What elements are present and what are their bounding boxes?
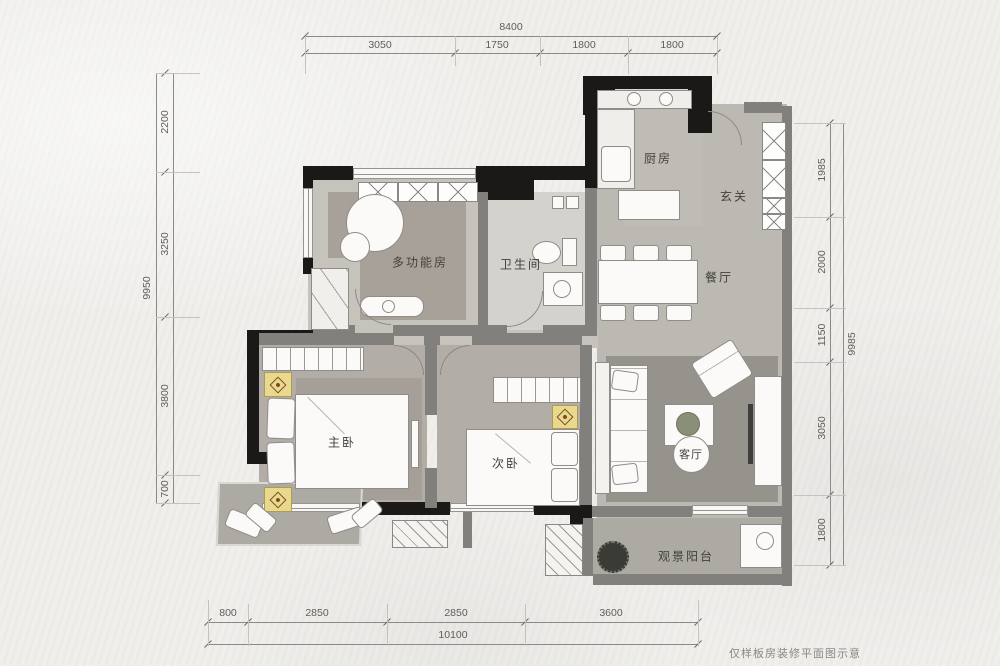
dim-label: 1800 bbox=[660, 39, 683, 51]
dim-label: 3250 bbox=[159, 232, 171, 255]
ac-platform bbox=[545, 524, 583, 576]
window bbox=[303, 188, 313, 258]
corner-cabinet bbox=[311, 268, 349, 330]
dim-label: 1800 bbox=[816, 518, 828, 541]
wall-segment bbox=[744, 102, 782, 113]
foyer-closet-cell bbox=[762, 214, 786, 230]
tv-cabinet bbox=[754, 376, 782, 486]
pillow bbox=[266, 442, 295, 485]
dim-extension bbox=[540, 36, 541, 66]
wall-segment bbox=[463, 512, 472, 548]
nightstand-medallion bbox=[270, 376, 287, 393]
multi-closet-cell bbox=[438, 182, 478, 202]
dim-extension bbox=[794, 495, 846, 496]
bath-basin bbox=[553, 280, 571, 298]
dining-chair bbox=[666, 245, 692, 261]
shower-fixture bbox=[552, 196, 564, 209]
master-door-leaf bbox=[411, 420, 419, 468]
room-label-foyer: 玄关 bbox=[720, 188, 748, 205]
foyer-closet-cell bbox=[762, 122, 786, 160]
wall-segment bbox=[425, 345, 437, 415]
balcony-plant bbox=[597, 541, 629, 573]
wall-segment bbox=[425, 468, 437, 508]
master-closet bbox=[262, 347, 364, 371]
sofa-pillow bbox=[611, 369, 640, 392]
room-label-bath: 卫生间 bbox=[500, 256, 542, 273]
dim-line bbox=[305, 36, 717, 37]
dim-line bbox=[208, 622, 698, 623]
ac-platform bbox=[392, 520, 448, 548]
wall-segment bbox=[585, 188, 597, 331]
pillow bbox=[551, 432, 578, 466]
room-label-balcony: 观景阳台 bbox=[658, 548, 714, 565]
wall-segment bbox=[580, 345, 592, 505]
dining-table bbox=[598, 260, 698, 304]
room-label-dining: 餐厅 bbox=[705, 269, 733, 286]
multi-closet-cell bbox=[398, 182, 438, 202]
dim-label: 3050 bbox=[368, 39, 391, 51]
foyer-closet-cell bbox=[762, 198, 786, 214]
dim-extension bbox=[794, 217, 846, 218]
dim-label: 10100 bbox=[438, 629, 467, 641]
dim-label: 3600 bbox=[599, 607, 622, 619]
nightstand-medallion bbox=[270, 491, 287, 508]
wall-segment bbox=[476, 166, 588, 180]
dim-line bbox=[843, 123, 844, 565]
dim-extension bbox=[305, 36, 306, 74]
heart-chair bbox=[340, 232, 370, 262]
dim-label: 2850 bbox=[444, 607, 467, 619]
floor-plan: 厨房 玄关 多功能房 卫生间 餐厅 主卧 次卧 客厅 观景阳台 8400 305… bbox=[0, 0, 1000, 666]
nightstand bbox=[264, 372, 292, 397]
room-label-multi: 多功能房 bbox=[392, 254, 448, 271]
second-dresser bbox=[493, 377, 581, 403]
fridge bbox=[618, 190, 680, 220]
sofa-back bbox=[595, 362, 610, 494]
dim-label: 1985 bbox=[816, 158, 828, 181]
dim-extension bbox=[208, 600, 209, 646]
dim-extension bbox=[156, 317, 200, 318]
dim-extension bbox=[698, 600, 699, 646]
dim-label: 2200 bbox=[159, 110, 171, 133]
dim-label: 3050 bbox=[816, 416, 828, 439]
nightstand bbox=[552, 405, 578, 429]
dining-chair bbox=[600, 305, 626, 321]
dim-label: 2000 bbox=[816, 250, 828, 273]
nightstand bbox=[264, 487, 292, 512]
dim-label: 3800 bbox=[159, 384, 171, 407]
dim-extension bbox=[387, 604, 388, 646]
room-label-living: 客厅 bbox=[679, 446, 703, 462]
dim-line bbox=[173, 73, 174, 503]
dining-chair bbox=[600, 245, 626, 261]
wall-segment bbox=[478, 192, 488, 325]
toilet-tank bbox=[562, 238, 577, 266]
pillow bbox=[551, 468, 578, 502]
wall-segment bbox=[247, 344, 259, 456]
dim-extension bbox=[794, 123, 846, 124]
sofa-pillow bbox=[611, 462, 639, 485]
dim-extension bbox=[717, 36, 718, 74]
wall-segment bbox=[583, 76, 712, 89]
washer bbox=[756, 532, 774, 550]
room-label-master: 主卧 bbox=[328, 434, 356, 451]
wall-segment bbox=[585, 89, 597, 188]
dim-extension bbox=[156, 503, 200, 504]
room-label-kitchen: 厨房 bbox=[644, 150, 672, 167]
dim-label: 8400 bbox=[499, 21, 522, 33]
dim-extension bbox=[794, 308, 846, 309]
dim-label: 2850 bbox=[305, 607, 328, 619]
dim-extension bbox=[794, 362, 846, 363]
dim-label: 9985 bbox=[846, 332, 858, 355]
wall-segment bbox=[748, 506, 782, 517]
dim-extension bbox=[794, 565, 846, 566]
kitchen-counter bbox=[597, 90, 692, 109]
dim-label: 800 bbox=[219, 607, 237, 619]
window bbox=[353, 168, 476, 179]
wall-segment bbox=[592, 506, 692, 517]
foyer-closet-cell bbox=[762, 160, 786, 198]
dim-line bbox=[830, 123, 831, 565]
plant bbox=[676, 412, 700, 436]
nightstand-medallion bbox=[557, 409, 574, 426]
stove-burner bbox=[659, 92, 673, 106]
tv bbox=[748, 404, 753, 464]
kitchen-sink bbox=[601, 146, 631, 182]
dim-label: 1750 bbox=[485, 39, 508, 51]
balcony-sliding-door bbox=[692, 505, 748, 515]
dim-line bbox=[208, 644, 698, 645]
dining-chair bbox=[633, 245, 659, 261]
dim-label: 1150 bbox=[816, 324, 828, 347]
dim-label: 9950 bbox=[141, 276, 153, 299]
dim-extension bbox=[156, 172, 200, 173]
pillow bbox=[266, 398, 295, 440]
wall-segment bbox=[593, 574, 783, 585]
dim-extension bbox=[455, 36, 456, 66]
dim-extension bbox=[525, 604, 526, 646]
shower-fixture bbox=[566, 196, 579, 209]
wall-segment bbox=[259, 333, 394, 345]
wall-segment bbox=[424, 333, 440, 345]
dining-chair bbox=[633, 305, 659, 321]
wall-segment bbox=[472, 333, 582, 345]
dim-extension bbox=[156, 475, 200, 476]
dim-label: 700 bbox=[159, 480, 171, 498]
dim-extension bbox=[156, 73, 200, 74]
dim-extension bbox=[628, 36, 629, 74]
wall-segment bbox=[303, 178, 313, 188]
dim-label: 1800 bbox=[572, 39, 595, 51]
dim-line bbox=[156, 73, 157, 503]
stove-burner bbox=[627, 92, 641, 106]
room-label-second: 次卧 bbox=[492, 455, 520, 472]
dim-extension bbox=[248, 604, 249, 646]
dim-line bbox=[305, 53, 717, 54]
footer-note: 仅样板房装修平面图示意 bbox=[729, 645, 861, 661]
dining-chair bbox=[666, 305, 692, 321]
wall-segment bbox=[583, 518, 593, 576]
